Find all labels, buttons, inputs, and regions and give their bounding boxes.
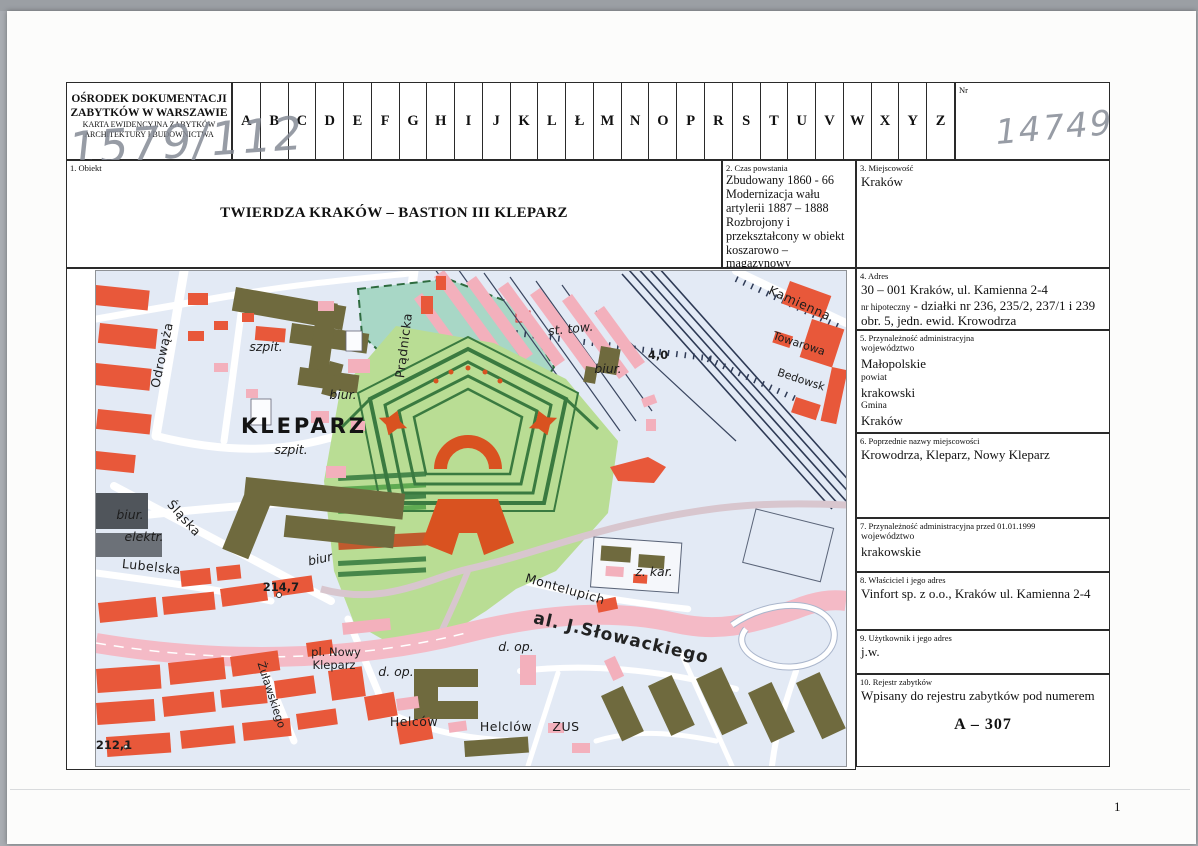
letter-cell: Y [898,83,926,159]
map-label: biur. [116,507,143,522]
letter-cell: G [399,83,427,159]
map-label: szpit. [274,442,307,457]
map-label: 4,0 [648,348,668,362]
miejscowosc-box: 3. Miejscowość Kraków [856,160,1110,268]
map-label: pl. Nowy [311,645,361,659]
wojewodztwo-label: województwo [857,343,1109,355]
letter-cell: Ł [565,83,593,159]
org-name-line1: OŚRODEK DOKUMENTACJI [71,92,226,106]
przed1999-label: 7. Przynależność administracyjna przed 0… [857,519,1109,531]
poprzednie-nazwy-box: 6. Poprzednie nazwy miejscowości Krowodr… [856,433,1110,518]
map-label: Helców [390,714,438,729]
map-label: ZUS [552,719,579,734]
letter-cell: P [676,83,704,159]
city-map: Odrowążaszpit.szpit.KLEPARZbiur.Prądnick… [96,271,846,766]
alphabet-index-strip: ABCDEFGHIJKLŁMNOPRSTUVWXYZ [232,82,955,160]
rejestr-value: Wpisany do rejestru zabytków pod numerem [857,687,1109,704]
adres-line2-small-label: nr hipoteczny [861,302,910,312]
map-label: d. op. [378,664,413,679]
rejestr-label: 10. Rejestr zabytków [857,675,1109,687]
letter-cell: R [704,83,732,159]
miejscowosc-value: Kraków [857,173,1109,190]
obiekt-box: 1. Obiekt TWIERDZA KRAKÓW – BASTION III … [66,160,722,268]
adres-line2: nr hipoteczny - działki nr 236, 235/2, 2… [857,298,1109,329]
powiat-value: krakowski [857,384,1109,401]
map-label: z. kar. [634,564,672,579]
uzytkownik-box: 9. Użytkownik i jego adres j.w. [856,630,1110,674]
map-label: 212,1 [96,738,132,752]
przed1999-value: krakowskie [857,543,1109,560]
letter-cell: Z [926,83,954,159]
poprzednie-label: 6. Poprzednie nazwy miejscowości [857,434,1109,446]
adres-box: 4. Adres 30 – 001 Kraków, ul. Kamienna 2… [856,268,1110,330]
map-label: elektr. [125,529,164,544]
map-label: 214,7 [263,580,299,594]
letter-cell: T [760,83,788,159]
uzytkownik-label: 9. Użytkownik i jego adres [857,631,1109,643]
letter-cell: V [815,83,843,159]
letter-cell: N [621,83,649,159]
map-label: biur. [329,387,356,402]
page-number: 1 [1114,799,1121,815]
adres-label: 4. Adres [857,269,1109,281]
obiekt-label: 1. Obiekt [67,161,721,173]
wlasciciel-value: Vinfort sp. z o.o., Kraków ul. Kamienna … [857,585,1109,602]
letter-cell: D [315,83,343,159]
gmina-value: Kraków [857,412,1109,429]
map-label: szpit. [249,339,282,354]
powiat-label: powiat [857,372,1109,384]
przynaleznosc-box: 5. Przynależność administracyjna wojewód… [856,330,1110,433]
rejestr-box: 10. Rejestr zabytków Wpisany do rejestru… [856,674,1110,767]
miejscowosc-label: 3. Miejscowość [857,161,1109,173]
gmina-label: Gmina [857,400,1109,412]
map-label: Helclów [480,719,532,734]
wlasciciel-box: 8. Właściciel i jego adres Vinfort sp. z… [856,572,1110,630]
letter-cell: X [871,83,899,159]
map-label: KLEPARZ [241,414,367,438]
wojewodztwo-value: Małopolskie [857,355,1109,372]
letter-cell: W [843,83,871,159]
letter-cell: K [510,83,538,159]
poprzednie-value: Krowodrza, Kleparz, Nowy Kleparz [857,446,1109,463]
scan-artifact-line [10,789,1190,790]
letter-cell: J [482,83,510,159]
nr-label: Nr [956,83,1109,95]
map-label: d. op. [498,639,533,654]
przed1999-sub-label: województwo [857,531,1109,543]
letter-cell: U [787,83,815,159]
przynaleznosc-label: 5. Przynależność administracyjna [857,331,1109,343]
letter-cell: O [648,83,676,159]
map-label: Kleparz [313,658,356,672]
wlasciciel-label: 8. Właściciel i jego adres [857,573,1109,585]
letter-cell: S [732,83,760,159]
city-map-image: Odrowążaszpit.szpit.KLEPARZbiur.Prądnick… [95,270,847,767]
letter-cell: I [454,83,482,159]
letter-cell: F [371,83,399,159]
scan-edge [0,0,1198,11]
letter-cell: E [343,83,371,159]
uzytkownik-value: j.w. [857,643,1109,660]
rejestr-number: A – 307 [857,716,1109,734]
letter-cell: L [537,83,565,159]
map-label: biur. [594,361,621,376]
adres-line1: 30 – 001 Kraków, ul. Kamienna 2-4 [857,281,1109,298]
letter-cell: H [426,83,454,159]
przed1999-box: 7. Przynależność administracyjna przed 0… [856,518,1110,572]
czas-box: 2. Czas powstania Zbudowany 1860 - 66 Mo… [722,160,856,268]
letter-cell: M [593,83,621,159]
object-title: TWIERDZA KRAKÓW – BASTION III KLEPARZ [67,173,721,253]
czas-label: 2. Czas powstania [723,161,855,173]
